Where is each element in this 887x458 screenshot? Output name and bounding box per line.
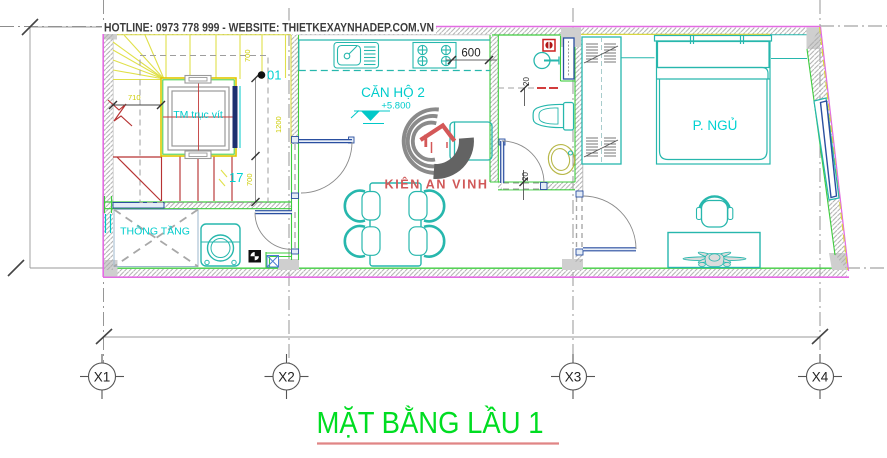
svg-text:17: 17 bbox=[229, 170, 243, 185]
svg-text:20: 20 bbox=[522, 77, 531, 86]
svg-text:X2: X2 bbox=[278, 370, 295, 385]
svg-text:TM trục vít: TM trục vít bbox=[173, 109, 223, 121]
svg-text:CĂN HỘ 2: CĂN HỘ 2 bbox=[361, 85, 425, 100]
svg-text:01: 01 bbox=[267, 68, 281, 83]
svg-text:X1: X1 bbox=[94, 370, 111, 385]
svg-text:710: 710 bbox=[128, 93, 141, 102]
svg-text:+5.800: +5.800 bbox=[381, 101, 410, 112]
svg-text:700: 700 bbox=[245, 173, 254, 186]
svg-text:MẶT BẰNG LẦU 1: MẶT BẰNG LẦU 1 bbox=[317, 405, 544, 440]
svg-text:KIÊN AN VINH: KIÊN AN VINH bbox=[385, 177, 489, 192]
svg-text:20: 20 bbox=[521, 172, 530, 181]
svg-text:1200: 1200 bbox=[274, 116, 283, 133]
svg-text:X3: X3 bbox=[565, 370, 582, 385]
svg-text:THÔNG TẦNG: THÔNG TẦNG bbox=[120, 225, 190, 238]
svg-text:700: 700 bbox=[243, 49, 252, 62]
svg-text:P. NGỦ: P. NGỦ bbox=[693, 118, 738, 133]
svg-text:HOTLINE: 0973 778 999 - WEBSIT: HOTLINE: 0973 778 999 - WEBSITE: THIETKE… bbox=[104, 21, 434, 35]
svg-text:600: 600 bbox=[461, 48, 480, 60]
svg-text:X4: X4 bbox=[812, 370, 829, 385]
